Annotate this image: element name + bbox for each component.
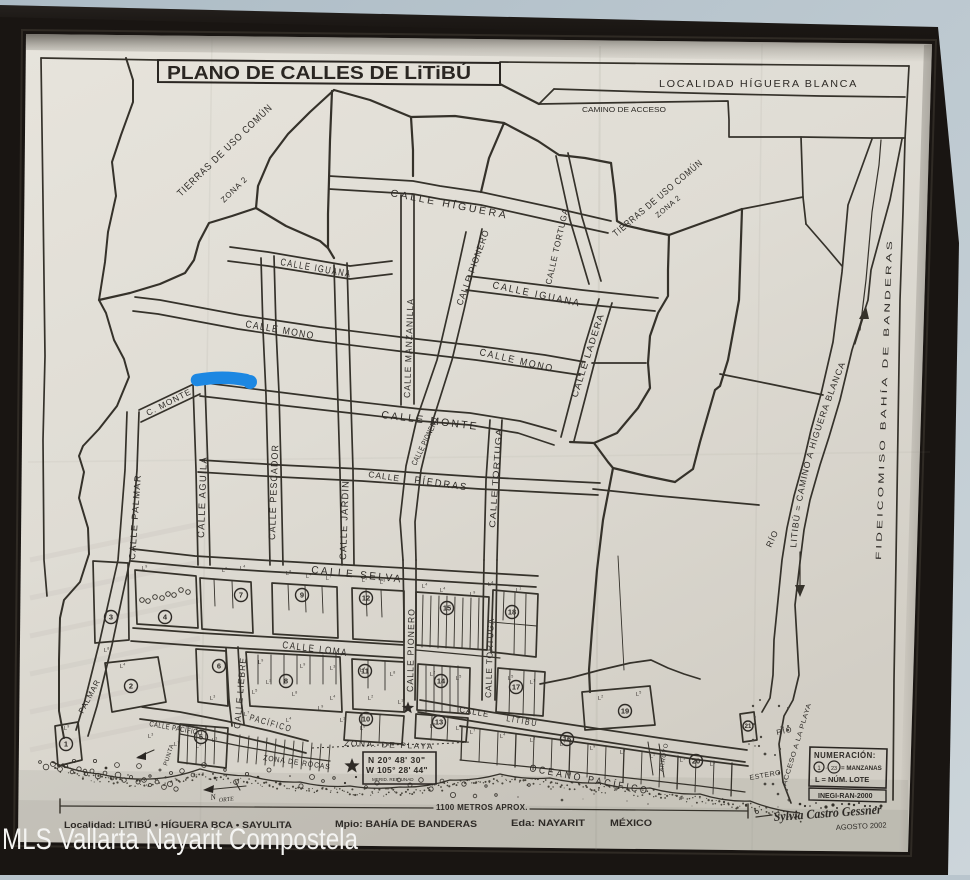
svg-text:1: 1 [401, 699, 403, 703]
svg-text:·: · [825, 765, 827, 772]
svg-text:2: 2 [129, 682, 133, 691]
svg-text:MERID. REF. UNAD: MERID. REF. UNAD [372, 777, 414, 782]
svg-text:9: 9 [593, 745, 595, 749]
svg-text:8: 8 [363, 725, 365, 729]
svg-text:5: 5 [255, 689, 257, 693]
svg-text:20: 20 [692, 757, 700, 766]
svg-text:14: 14 [437, 677, 446, 686]
svg-text:21: 21 [745, 724, 752, 730]
svg-text:MLS Vallarta Nayarit Compostel: MLS Vallarta Nayarit Compostela [2, 823, 358, 856]
svg-text:5: 5 [511, 675, 513, 679]
svg-text:3: 3 [213, 695, 215, 699]
svg-text:INEGI-RAN-2000: INEGI-RAN-2000 [818, 793, 873, 800]
svg-text:MÉXICO: MÉXICO [610, 818, 652, 829]
svg-text:10: 10 [362, 715, 370, 724]
svg-text:8: 8 [295, 691, 297, 695]
svg-text:5: 5 [199, 743, 201, 747]
svg-text:3: 3 [333, 665, 335, 669]
svg-text:3: 3 [151, 733, 153, 737]
svg-text:L = NÚM. LOTE: L = NÚM. LOTE [815, 775, 869, 784]
svg-text:8: 8 [623, 749, 625, 753]
svg-text:9: 9 [225, 567, 227, 571]
svg-text:5: 5 [199, 733, 203, 742]
svg-text:17: 17 [512, 683, 520, 692]
svg-text:9: 9 [67, 725, 69, 729]
svg-text:6: 6 [217, 662, 221, 671]
svg-text:= MANZANAS: = MANZANAS [841, 765, 882, 772]
svg-text:12: 12 [362, 594, 370, 603]
svg-text:7: 7 [563, 741, 565, 745]
svg-text:7: 7 [177, 741, 179, 745]
svg-text:2: 2 [601, 695, 603, 699]
svg-text:4: 4 [459, 725, 461, 729]
svg-text:9: 9 [145, 565, 147, 569]
svg-text:4: 4 [333, 695, 335, 699]
svg-text:W 105° 28' 44": W 105° 28' 44" [366, 765, 428, 775]
svg-text:3: 3 [109, 613, 113, 622]
svg-text:PLANO DE CALLES DE LiTiBÚ: PLANO DE CALLES DE LiTiBÚ [167, 62, 471, 83]
svg-text:7: 7 [329, 575, 331, 579]
svg-text:9: 9 [261, 659, 263, 663]
svg-text:2: 2 [433, 671, 435, 675]
svg-text:5: 5 [639, 691, 641, 695]
svg-text:8: 8 [289, 570, 291, 574]
svg-text:Eda: NAYARIT: Eda: NAYARIT [511, 818, 585, 829]
svg-text:4: 4 [123, 663, 125, 667]
svg-text:8: 8 [107, 647, 109, 651]
svg-text:LOCALIDAD HÍGUERA BLANCA: LOCALIDAD HÍGUERA BLANCA [659, 77, 858, 90]
svg-text:3: 3 [433, 723, 435, 727]
svg-text:7: 7 [473, 729, 475, 733]
svg-text:NUMERACIÓN:: NUMERACIÓN: [814, 751, 876, 760]
svg-text:3: 3 [215, 737, 217, 741]
svg-text:CALLE PIONERO: CALLE PIONERO [405, 608, 416, 692]
svg-text:9: 9 [321, 705, 323, 709]
svg-text:4: 4 [491, 581, 493, 585]
svg-text:CAMINO DE ACCESO: CAMINO DE ACCESO [582, 107, 667, 114]
svg-text:1: 1 [683, 757, 685, 761]
svg-text:4: 4 [289, 717, 291, 721]
svg-text:23: 23 [831, 766, 837, 772]
svg-text:1: 1 [533, 679, 535, 683]
svg-text:9: 9 [300, 591, 304, 600]
svg-text:9: 9 [473, 591, 475, 595]
svg-text:7: 7 [247, 711, 249, 715]
svg-text:7: 7 [239, 591, 243, 600]
svg-text:4: 4 [363, 667, 365, 671]
svg-text:8: 8 [713, 761, 715, 765]
svg-text:4: 4 [243, 565, 245, 569]
svg-text:1100 METROS APROX.: 1100 METROS APROX. [436, 803, 528, 812]
svg-text:3: 3 [365, 577, 367, 581]
svg-text:13: 13 [435, 718, 443, 727]
svg-text:2: 2 [533, 737, 535, 741]
svg-text:18: 18 [508, 608, 516, 617]
svg-text:4: 4 [425, 583, 427, 587]
svg-text:2: 2 [269, 679, 271, 683]
svg-text:2: 2 [371, 695, 373, 699]
svg-text:15: 15 [443, 604, 451, 613]
svg-text:3: 3 [383, 579, 385, 583]
svg-text:8: 8 [393, 671, 395, 675]
svg-text:5: 5 [459, 675, 461, 679]
svg-text:9: 9 [303, 663, 305, 667]
svg-text:4: 4 [503, 733, 505, 737]
svg-text:4: 4 [443, 587, 445, 591]
svg-text:1: 1 [519, 587, 521, 591]
svg-text:5: 5 [653, 753, 655, 757]
svg-text:3: 3 [343, 717, 345, 721]
svg-text:1: 1 [64, 740, 68, 749]
svg-text:19: 19 [621, 707, 629, 716]
svg-text:N 20° 48' 30": N 20° 48' 30" [368, 755, 426, 765]
svg-text:4: 4 [309, 573, 311, 577]
svg-text:8: 8 [284, 677, 288, 686]
